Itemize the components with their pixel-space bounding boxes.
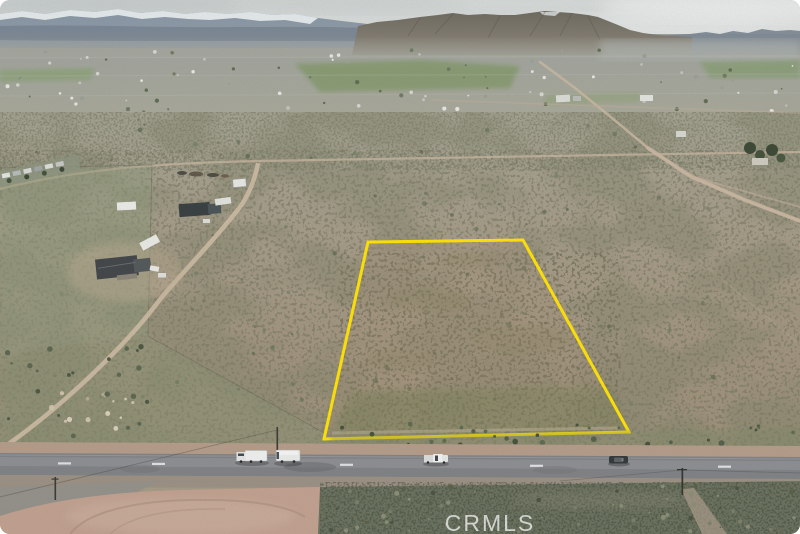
aerial-photo: CRMLS [0,0,800,534]
aerial-photo-canvas: CRMLS [0,0,800,534]
film-grain [0,0,800,534]
